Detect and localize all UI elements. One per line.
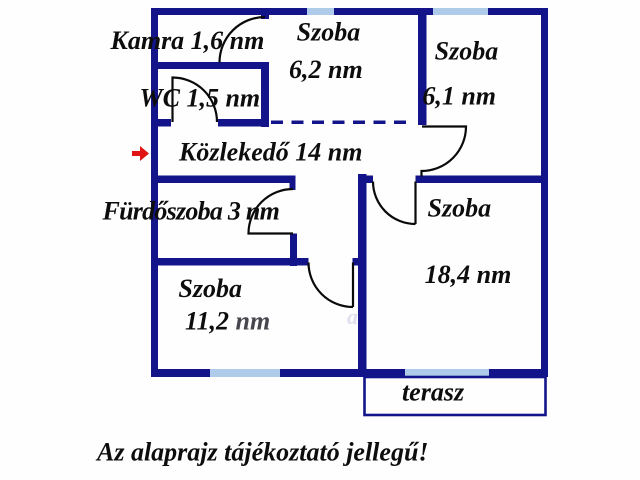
svg-text:6,1 nm: 6,1 nm [422,82,496,111]
svg-text:6,2 nm: 6,2 nm [289,55,363,84]
svg-text:WC 1,5 nm: WC 1,5 nm [140,84,261,113]
svg-text:Kamra 1,6 nm: Kamra 1,6 nm [110,26,265,55]
svg-text:Szoba: Szoba [435,36,499,65]
svg-text:18,4 nm: 18,4 nm [425,260,512,289]
svg-text:a: a [347,304,358,329]
svg-text:Szoba: Szoba [178,274,242,303]
svg-text:Szoba: Szoba [428,193,492,222]
svg-text:Fürdőszoba 3 nm: Fürdőszoba 3 nm [102,197,280,226]
svg-text:Közlekedő 14 nm: Közlekedő 14 nm [178,138,362,167]
svg-text:Szoba: Szoba [297,18,361,47]
svg-text:11,2 nm: 11,2 nm [185,306,270,335]
svg-text:Az alaprajz tájékoztató jelleg: Az alaprajz tájékoztató jellegű! [95,438,429,467]
svg-text:terasz: terasz [402,378,465,407]
